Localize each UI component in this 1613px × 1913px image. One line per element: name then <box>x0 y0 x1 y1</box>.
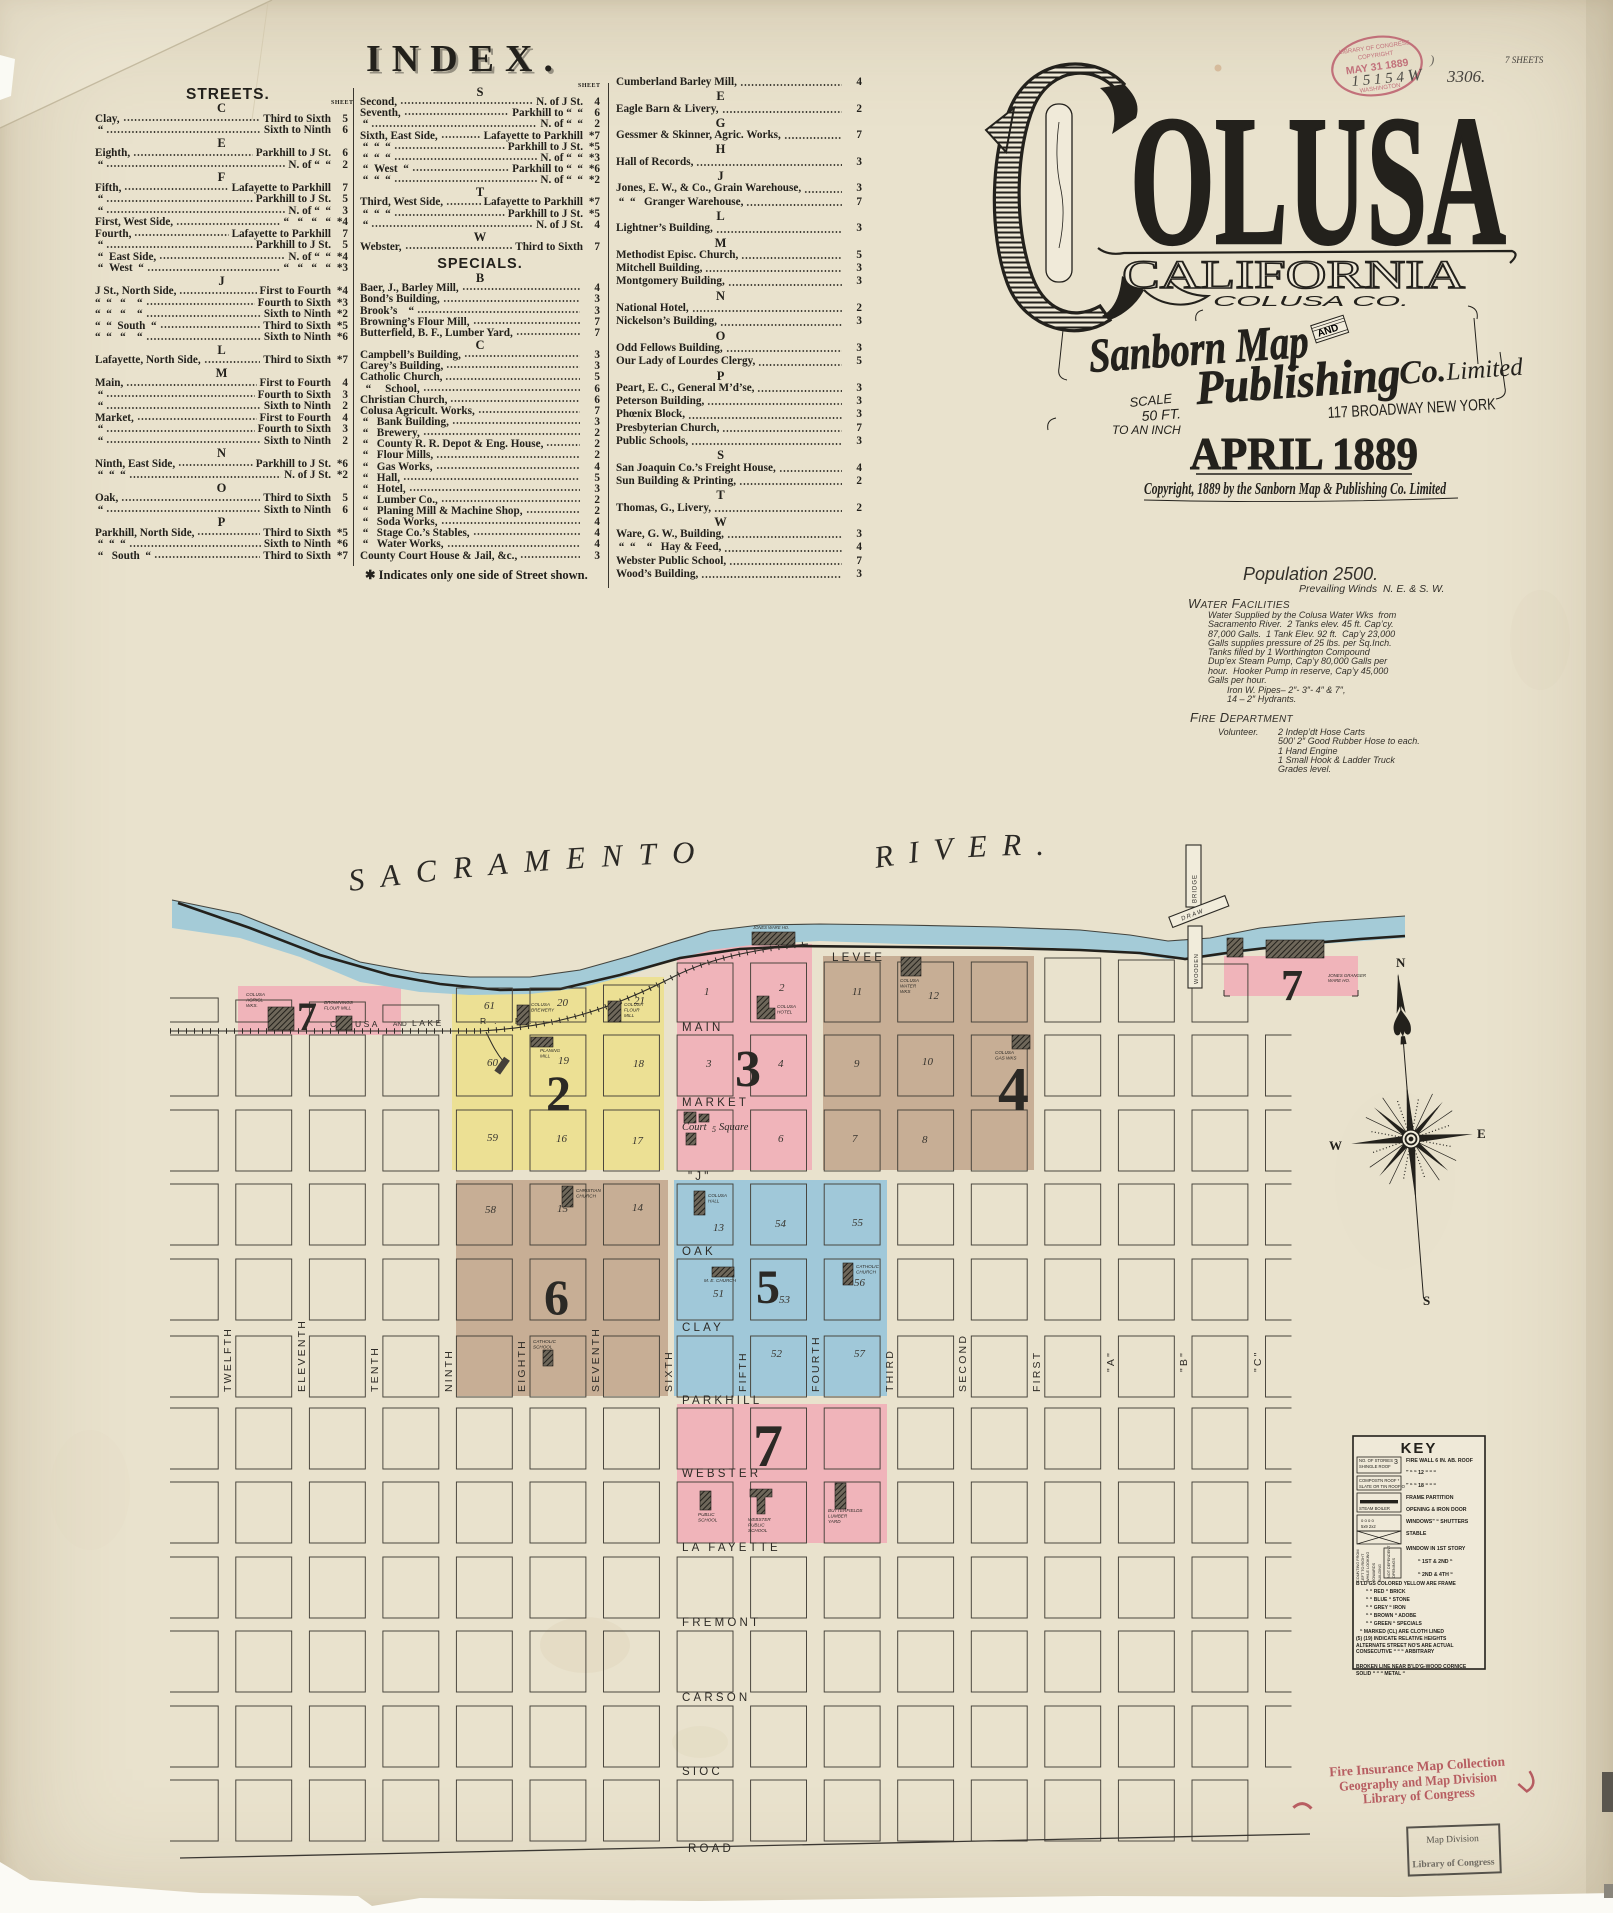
svg-text:KEY: KEY <box>1401 1440 1438 1457</box>
svg-text:7: 7 <box>753 1413 783 1479</box>
svg-text:BROKEN LINE NEAR B'LD'G-WOOD C: BROKEN LINE NEAR B'LD'G-WOOD CORNICE <box>1356 1664 1467 1670</box>
svg-text:3: 3 <box>705 1058 712 1070</box>
svg-text:4: 4 <box>998 1056 1029 1124</box>
svg-text:BUILDING: BUILDING <box>1378 1564 1382 1582</box>
svg-text:53: 53 <box>779 1294 791 1306</box>
svg-text:ELEVENTH: ELEVENTH <box>296 1319 308 1392</box>
svg-text:ROAD: ROAD <box>688 1843 734 1855</box>
svg-text:PARKHILL: PARKHILL <box>682 1395 762 1407</box>
svg-text:“ “ BROWN “ ADOBE: “ “ BROWN “ ADOBE <box>1366 1613 1417 1619</box>
svg-text:JONES WARE HO.: JONES WARE HO. <box>752 925 789 930</box>
svg-text:1: 1 <box>704 986 710 998</box>
svg-text:5: 5 <box>756 1261 780 1314</box>
svg-text:“ “ BLUE “ STONE: “ “ BLUE “ STONE <box>1366 1597 1410 1603</box>
svg-text:3306.: 3306. <box>1446 67 1485 86</box>
svg-text:MARKET: MARKET <box>682 1097 749 1109</box>
svg-text:FIRST: FIRST <box>1031 1351 1043 1392</box>
svg-text:"B": "B" <box>1178 1351 1190 1372</box>
svg-text:N: N <box>1396 955 1406 970</box>
svg-text:SHINGLE ROOF: SHINGLE ROOF <box>1359 1464 1391 1469</box>
svg-text:BRIDGE: BRIDGE <box>1193 874 1199 903</box>
svg-text:CARSON: CARSON <box>682 1692 750 1704</box>
svg-text:61: 61 <box>484 1000 495 1012</box>
svg-text:SIXTH: SIXTH <box>663 1350 675 1392</box>
svg-text:TENTH: TENTH <box>369 1346 381 1392</box>
svg-text:TOWARDS: TOWARDS <box>1372 1562 1376 1582</box>
svg-text:9: 9 <box>854 1058 860 1070</box>
svg-text:59: 59 <box>487 1132 499 1144</box>
svg-text:” “ “ 12 “ “ “: ” “ “ 12 “ “ “ <box>1406 1470 1436 1476</box>
svg-text:TO AN INCH: TO AN INCH <box>1112 423 1181 437</box>
svg-text:WINDOW IN 1ST STORY: WINDOW IN 1ST STORY <box>1406 1546 1466 1552</box>
svg-text:WEBSTER: WEBSTER <box>682 1468 761 1480</box>
svg-text:LEFT TO RIGHT: LEFT TO RIGHT <box>1361 1553 1365 1582</box>
svg-text:FOURTH: FOURTH <box>810 1335 822 1392</box>
svg-text:JONES GRANGERWARE HO.: JONES GRANGERWARE HO. <box>1327 973 1367 983</box>
svg-text:COMPOSTN ROOF *: COMPOSTN ROOF * <box>1359 1478 1400 1483</box>
svg-text:3: 3 <box>735 1041 761 1098</box>
svg-text:OPENING & IRON DOOR: OPENING & IRON DOOR <box>1406 1507 1467 1513</box>
svg-text:CALIFORNIA: CALIFORNIA <box>1122 252 1465 297</box>
svg-text:2: 2 <box>546 1065 571 1121</box>
svg-text:Map Division: Map Division <box>1426 1834 1479 1846</box>
svg-text:SLATE OR TIN ROOF O: SLATE OR TIN ROOF O <box>1359 1484 1406 1489</box>
svg-text:5: 5 <box>712 1125 716 1134</box>
svg-text:"C": "C" <box>1252 1350 1264 1372</box>
svg-text:52: 52 <box>771 1348 783 1360</box>
svg-text:LA FAYETTE: LA FAYETTE <box>682 1542 781 1554</box>
svg-text:APRIL 1889: APRIL 1889 <box>1190 428 1418 479</box>
svg-text:CLAY: CLAY <box>682 1322 724 1334</box>
svg-text:BROWNINGSFLOUR MILL: BROWNINGSFLOUR MILL <box>324 1000 354 1010</box>
svg-text:7 SHEETS: 7 SHEETS <box>1505 55 1544 65</box>
svg-text:COLUSA CO.: COLUSA CO. <box>1213 293 1409 310</box>
svg-text:SECOND: SECOND <box>957 1334 969 1392</box>
svg-text:RIVER.: RIVER. <box>871 827 1059 875</box>
svg-text:Court: Court <box>682 1122 708 1133</box>
svg-text:20: 20 <box>557 997 569 1009</box>
svg-text:“ 2ND & 4TH “: “ 2ND & 4TH “ <box>1418 1572 1453 1578</box>
svg-text:NINTH: NINTH <box>443 1349 455 1392</box>
svg-text:TWELFTH: TWELFTH <box>222 1327 234 1392</box>
svg-text:"A": "A" <box>1105 1351 1117 1372</box>
svg-text:"J": "J" <box>688 1171 712 1183</box>
svg-text:6: 6 <box>778 1133 784 1145</box>
svg-text:CONSECUTIVE “ “ “ ARBITRARY: CONSECUTIVE “ “ “ ARBITRARY <box>1356 1649 1435 1655</box>
svg-text:“ “ GREY “ IRON: “ “ GREY “ IRON <box>1366 1605 1406 1611</box>
svg-text:FRAME PARTITION: FRAME PARTITION <box>1406 1495 1454 1501</box>
svg-text:FIRE WALL 6 IN. AB. ROOF: FIRE WALL 6 IN. AB. ROOF <box>1406 1458 1473 1464</box>
svg-text:56: 56 <box>854 1277 866 1289</box>
svg-text:5x9 2x2: 5x9 2x2 <box>1361 1524 1376 1529</box>
svg-text:19: 19 <box>558 1055 570 1067</box>
svg-text:57: 57 <box>854 1348 866 1360</box>
svg-text:SIOC: SIOC <box>682 1766 723 1778</box>
svg-text:THIRD: THIRD <box>884 1349 896 1392</box>
svg-text:4: 4 <box>778 1058 784 1070</box>
svg-text:COUNTING FROM: COUNTING FROM <box>1356 1550 1360 1582</box>
svg-text:50 FT.: 50 FT. <box>1141 405 1181 424</box>
svg-text:Limited: Limited <box>1445 354 1525 386</box>
svg-text:): ) <box>1429 52 1434 67</box>
svg-text:OPENINGS: OPENINGS <box>1392 1557 1396 1578</box>
svg-text:SACRAMENTO: SACRAMENTO <box>346 834 711 898</box>
svg-text:55: 55 <box>852 1217 864 1229</box>
svg-text:E: E <box>1477 1126 1486 1141</box>
svg-text:WHILE LOOKING: WHILE LOOKING <box>1366 1552 1370 1582</box>
svg-text:SOLID “ “ “ METAL: SOLID “ “ “ METAL “ <box>1356 1671 1405 1677</box>
svg-text:LEVEE: LEVEE <box>832 952 885 964</box>
svg-text:14: 14 <box>632 1202 644 1214</box>
svg-text:18: 18 <box>633 1058 645 1070</box>
svg-text:7: 7 <box>852 1133 858 1145</box>
svg-text:“ 1ST & 2ND “: “ 1ST & 2ND “ <box>1418 1559 1453 1565</box>
svg-text:16: 16 <box>556 1133 568 1145</box>
svg-text:NOT DEPENDENT: NOT DEPENDENT <box>1387 1545 1391 1578</box>
svg-text:STEAM BOILER: STEAM BOILER <box>1359 1506 1390 1511</box>
svg-text:OAK: OAK <box>682 1246 716 1258</box>
svg-text:13: 13 <box>713 1222 725 1234</box>
svg-text:STABLE: STABLE <box>1406 1531 1427 1537</box>
svg-text:WOODEN: WOODEN <box>1194 953 1200 984</box>
svg-text:8: 8 <box>922 1134 928 1146</box>
svg-text:FREMONT: FREMONT <box>682 1617 761 1629</box>
svg-text:2: 2 <box>779 982 785 994</box>
svg-text:7: 7 <box>1281 961 1303 1010</box>
svg-text:Library of Congress: Library of Congress <box>1412 1858 1495 1871</box>
svg-text:7: 7 <box>297 994 317 1039</box>
svg-text:“ MARKED (CL) ARE CLOTH LINED: “ MARKED (CL) ARE CLOTH LINED <box>1360 1629 1444 1635</box>
svg-text:Copyright, 1889 by the Sanborn: Copyright, 1889 by the Sanborn Map & Pub… <box>1144 479 1446 498</box>
svg-text:58: 58 <box>485 1204 497 1216</box>
svg-text:S: S <box>1423 1293 1430 1308</box>
svg-text:MAIN: MAIN <box>682 1022 724 1034</box>
svg-text:SEVENTH: SEVENTH <box>590 1327 602 1392</box>
svg-text:“ “ GREEN “ SPECIAL: “ “ GREEN “ SPECIALS <box>1366 1621 1423 1627</box>
svg-text:12: 12 <box>928 990 940 1002</box>
svg-text:51: 51 <box>713 1288 724 1300</box>
svg-text:10: 10 <box>922 1056 934 1068</box>
svg-text:Co.: Co. <box>1398 353 1447 392</box>
svg-text:17: 17 <box>632 1135 644 1147</box>
svg-text:11: 11 <box>852 986 862 998</box>
svg-text:o o o o: o o o o <box>1361 1518 1374 1523</box>
svg-text:WINDOWS” “ SHUTTERS: WINDOWS” “ SHUTTERS <box>1406 1519 1469 1525</box>
svg-text:3: 3 <box>1394 1459 1398 1466</box>
svg-text:54: 54 <box>775 1218 787 1230</box>
svg-text:” “ “ 18 “ “ “: ” “ “ 18 “ “ “ <box>1406 1483 1436 1489</box>
svg-text:FIFTH: FIFTH <box>737 1351 749 1392</box>
svg-text:EIGHTH: EIGHTH <box>516 1339 528 1392</box>
svg-text:B'LD'GS COLORED YELLOW ARE FRA: B'LD'GS COLORED YELLOW ARE FRAME <box>1356 1581 1457 1587</box>
svg-text:M. E. CHURCH: M. E. CHURCH <box>704 1278 737 1283</box>
svg-text:6: 6 <box>544 1269 569 1325</box>
svg-text:W: W <box>1329 1138 1342 1153</box>
svg-text:Square: Square <box>719 1122 749 1133</box>
svg-text:NO. OF STORIES: NO. OF STORIES <box>1359 1458 1393 1463</box>
svg-text:(5) (19) INDICATE RELATIVE HEI: (5) (19) INDICATE RELATIVE HEIGHTS <box>1356 1636 1447 1642</box>
svg-text:60: 60 <box>487 1057 499 1069</box>
svg-text:“ “ RED “ BRICK: “ “ RED “ BRICK <box>1366 1589 1406 1595</box>
